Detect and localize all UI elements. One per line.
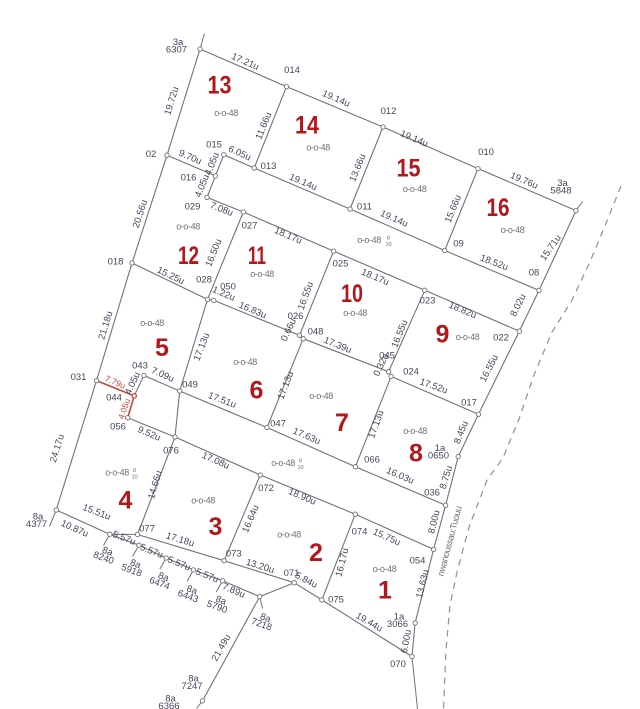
svg-text:014: 014 — [284, 65, 300, 76]
svg-text:010: 010 — [478, 147, 494, 158]
svg-text:7247: 7247 — [181, 681, 202, 692]
svg-text:16: 16 — [487, 194, 510, 222]
svg-text:3: 3 — [209, 513, 223, 541]
svg-text:13: 13 — [208, 72, 232, 100]
svg-text:o-o-48: o-o-48 — [343, 308, 367, 318]
svg-text:10: 10 — [297, 465, 303, 471]
svg-text:070: 070 — [390, 659, 406, 670]
svg-text:031: 031 — [71, 372, 87, 383]
svg-text:09: 09 — [453, 238, 464, 249]
svg-text:8: 8 — [387, 236, 390, 242]
svg-text:02: 02 — [146, 149, 157, 160]
svg-text:025: 025 — [333, 258, 349, 269]
svg-text:o-o-48: o-o-48 — [456, 332, 480, 342]
svg-text:08: 08 — [529, 267, 540, 278]
svg-text:027: 027 — [242, 220, 258, 231]
svg-text:013: 013 — [261, 161, 277, 172]
svg-text:049: 049 — [182, 379, 198, 390]
svg-text:023: 023 — [420, 295, 436, 306]
svg-text:043: 043 — [132, 360, 148, 371]
svg-text:5848: 5848 — [550, 186, 571, 197]
svg-text:o-o-48: o-o-48 — [309, 391, 333, 401]
svg-text:o-o-48: o-o-48 — [214, 108, 238, 118]
svg-text:o-o-48: o-o-48 — [277, 530, 301, 540]
svg-text:026: 026 — [288, 311, 304, 322]
svg-text:050: 050 — [220, 281, 236, 292]
svg-text:072: 072 — [258, 483, 274, 494]
svg-text:012: 012 — [381, 106, 397, 117]
svg-text:6307: 6307 — [166, 45, 187, 56]
svg-text:8: 8 — [409, 440, 423, 468]
svg-text:036: 036 — [424, 487, 440, 498]
svg-text:8: 8 — [299, 459, 302, 465]
svg-text:14: 14 — [295, 112, 319, 140]
svg-text:6: 6 — [250, 377, 264, 405]
svg-text:7: 7 — [335, 409, 349, 437]
svg-text:015: 015 — [206, 139, 222, 150]
svg-text:o-o-48: o-o-48 — [176, 222, 200, 232]
svg-text:10: 10 — [341, 280, 363, 308]
svg-text:045: 045 — [379, 350, 395, 361]
svg-text:1: 1 — [378, 577, 392, 605]
svg-text:o-o-48: o-o-48 — [250, 269, 274, 279]
svg-text:071: 071 — [284, 568, 300, 579]
svg-text:016: 016 — [181, 172, 197, 183]
svg-text:029: 029 — [185, 201, 201, 212]
svg-text:o-o-48: o-o-48 — [233, 357, 257, 367]
svg-text:022: 022 — [493, 332, 509, 343]
svg-text:o-o-48: o-o-48 — [140, 318, 164, 328]
svg-text:054: 054 — [410, 555, 426, 566]
svg-text:9: 9 — [436, 321, 450, 349]
svg-text:066: 066 — [364, 454, 380, 465]
svg-text:4377: 4377 — [26, 519, 47, 530]
svg-text:028: 028 — [196, 274, 212, 285]
svg-text:o-o-48: o-o-48 — [191, 496, 215, 506]
svg-text:o-o-48: o-o-48 — [373, 564, 397, 574]
svg-text:o-o-48: o-o-48 — [105, 468, 129, 478]
svg-text:11: 11 — [248, 242, 266, 270]
svg-text:017: 017 — [461, 397, 477, 408]
svg-text:076: 076 — [163, 445, 179, 456]
svg-text:10: 10 — [385, 242, 391, 248]
svg-text:075: 075 — [328, 594, 344, 605]
svg-text:024: 024 — [403, 366, 419, 377]
svg-text:2: 2 — [309, 539, 323, 567]
svg-text:6366: 6366 — [158, 701, 179, 709]
svg-text:5: 5 — [155, 334, 169, 362]
svg-text:4: 4 — [119, 487, 133, 515]
svg-text:073: 073 — [226, 548, 242, 559]
svg-text:o-o-48: o-o-48 — [271, 458, 295, 468]
svg-text:044: 044 — [106, 392, 122, 403]
svg-text:o-o-48: o-o-48 — [357, 235, 381, 245]
svg-text:077: 077 — [139, 523, 155, 534]
svg-text:074: 074 — [352, 526, 368, 537]
svg-text:o-o-48: o-o-48 — [403, 184, 427, 194]
svg-text:018: 018 — [108, 256, 124, 267]
svg-text:15: 15 — [397, 155, 421, 183]
svg-text:10: 10 — [131, 475, 137, 481]
svg-text:3066: 3066 — [387, 619, 408, 630]
svg-text:056: 056 — [110, 421, 126, 432]
svg-text:12: 12 — [178, 242, 199, 270]
svg-text:0650: 0650 — [428, 451, 449, 462]
svg-text:o-o-48: o-o-48 — [403, 426, 427, 436]
svg-text:8: 8 — [133, 468, 136, 474]
svg-text:o-o-48: o-o-48 — [501, 225, 525, 235]
svg-text:o-o-48: o-o-48 — [306, 143, 330, 153]
svg-text:011: 011 — [357, 201, 372, 212]
svg-text:048: 048 — [308, 326, 324, 337]
svg-text:047: 047 — [270, 418, 286, 429]
